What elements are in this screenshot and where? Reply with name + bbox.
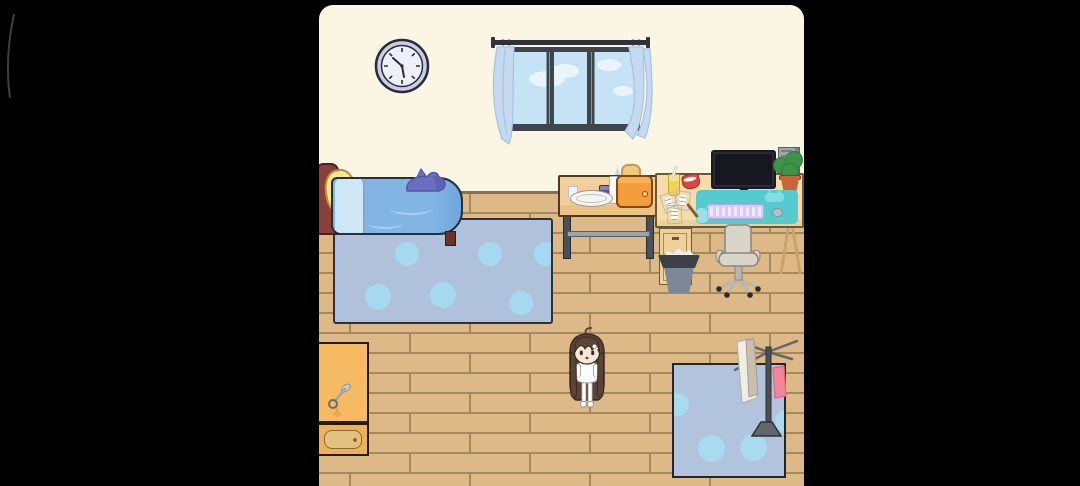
curtain-ring <box>506 40 512 46</box>
mat-circle <box>698 435 725 462</box>
table-crossbar <box>567 231 650 237</box>
keyboard-keys <box>710 207 761 216</box>
chair-pole <box>735 265 742 280</box>
shark-plush[interactable] <box>403 167 449 195</box>
mat-circle <box>672 393 689 416</box>
rack-base <box>752 422 781 436</box>
room-view <box>319 5 804 486</box>
monitor[interactable] <box>711 150 776 189</box>
wall-clock <box>374 38 430 94</box>
breakfast-table[interactable] <box>558 160 660 260</box>
window <box>487 35 667 153</box>
shoe-left <box>581 402 587 408</box>
shoe-right <box>588 402 594 408</box>
chair-caster <box>747 292 753 298</box>
letterbox-arc <box>0 0 40 120</box>
rack-pole <box>766 347 771 433</box>
cabinet-drawer[interactable] <box>319 423 369 456</box>
leg-right <box>588 383 592 402</box>
leg-left <box>582 383 586 402</box>
eye-right <box>591 351 594 356</box>
rug-dot <box>430 282 456 308</box>
game-screen <box>0 0 1080 486</box>
chair-back <box>725 225 751 257</box>
drying-rack[interactable] <box>724 330 804 445</box>
blanket-crease <box>389 201 433 215</box>
key-shaft <box>335 389 345 401</box>
hairpin <box>593 345 597 349</box>
desk-leg <box>791 228 801 274</box>
girl-character[interactable] <box>565 326 609 414</box>
bed-leg <box>445 231 456 246</box>
door-key[interactable] <box>325 382 357 420</box>
bed[interactable] <box>319 163 467 247</box>
curtain-ring <box>630 40 636 46</box>
plate[interactable] <box>570 190 613 207</box>
desk-leg <box>779 228 789 274</box>
rug-dot <box>534 242 553 266</box>
chair-caster <box>724 292 730 298</box>
blanket-crease <box>367 217 403 229</box>
curtain-ring <box>636 40 642 46</box>
hair-lock-right <box>597 352 603 398</box>
window-mullion <box>550 52 554 124</box>
drawer-panel <box>324 430 362 449</box>
drawer-knob <box>353 438 357 442</box>
toaster-button[interactable] <box>642 191 648 197</box>
key-flower-charm <box>333 408 341 417</box>
chair-caster <box>716 286 722 292</box>
toaster[interactable] <box>616 175 653 208</box>
curtain-rod <box>493 40 650 45</box>
plate-inner-ring <box>576 194 607 203</box>
rug-dot <box>478 242 502 266</box>
rug-dot <box>509 291 533 315</box>
bowl-rim <box>683 176 697 183</box>
chair-caster <box>755 286 761 292</box>
mouth <box>585 357 588 359</box>
mouse[interactable] <box>772 208 783 217</box>
hairpin-dot <box>596 347 598 349</box>
window-mullion <box>587 52 591 124</box>
window-sill <box>508 125 640 131</box>
towel-pink[interactable] <box>773 366 786 398</box>
hair-lock-left <box>571 352 577 398</box>
rug-dot <box>365 284 391 310</box>
mat-cat-head <box>765 193 784 202</box>
shoe-cabinet[interactable] <box>319 342 369 423</box>
paper-sheet[interactable] <box>667 205 683 225</box>
blanket-fold <box>335 177 365 235</box>
office-chair[interactable] <box>709 221 767 301</box>
chair-seat <box>719 253 758 266</box>
keyboard[interactable] <box>707 204 764 219</box>
eye-left <box>580 351 583 356</box>
trash-rim <box>658 255 700 268</box>
key-ring <box>329 400 337 408</box>
drawer-handle <box>672 237 679 240</box>
monitor-screen <box>715 154 772 185</box>
trash-can[interactable] <box>656 243 702 295</box>
curtain-ring <box>500 40 506 46</box>
chair-base <box>719 279 758 294</box>
